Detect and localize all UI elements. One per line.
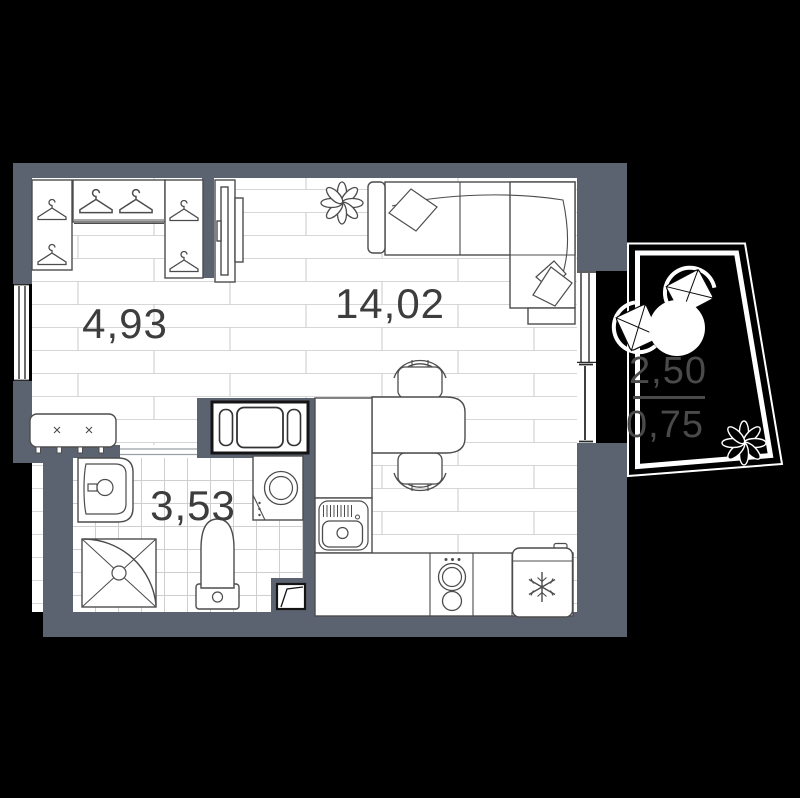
floor-plan-drawing <box>0 0 800 798</box>
shower-icon <box>82 539 156 607</box>
bench-icon <box>30 414 116 453</box>
tv-divider-wall <box>202 175 214 278</box>
toilet-icon <box>196 519 239 609</box>
bathroom-area-label: 3,53 <box>118 485 268 527</box>
balcony-area-label: 2,50 <box>593 352 743 390</box>
floor-plan-canvas: 4,93 14,02 3,53 2,50 0,75 <box>0 0 800 798</box>
hall-cabinet-icon <box>212 402 308 453</box>
hallway-area-label: 4,93 <box>50 303 200 345</box>
balcony-table-icon <box>649 300 705 356</box>
bathroom-door-threshold <box>120 445 197 458</box>
vent-icon <box>277 584 305 609</box>
balcony-coefficient-divider <box>633 396 705 399</box>
fridge-icon <box>513 544 573 618</box>
window-icon <box>577 271 596 364</box>
balcony-reduced-area-label: 0,75 <box>590 406 740 444</box>
plant-icon <box>321 182 363 224</box>
dining-table-icon <box>372 397 465 453</box>
window-icon <box>14 284 29 381</box>
living-kitchen-area-label: 14,02 <box>315 283 465 325</box>
